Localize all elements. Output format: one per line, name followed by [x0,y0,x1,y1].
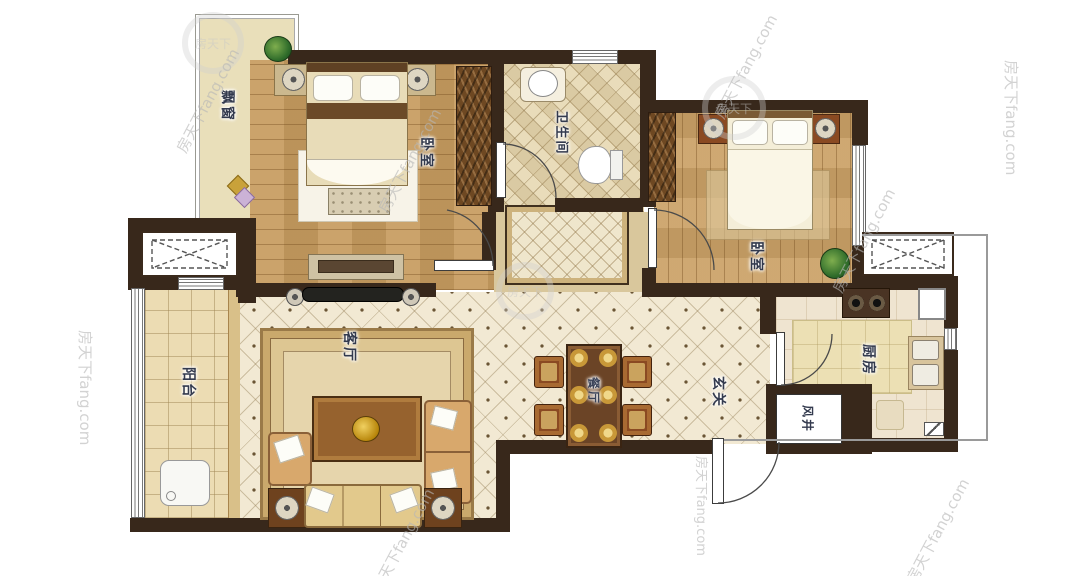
burner-icon [869,295,885,311]
dining-chair [534,356,564,388]
wall-segment [944,284,958,328]
bedroom-right-window [852,145,866,246]
lamp-icon [275,496,299,520]
wall-segment [238,218,256,303]
plate-icon [599,349,617,367]
headboard [307,63,407,72]
toilet-tank [610,150,623,180]
washer-dial-icon [166,491,176,501]
table-bowl-icon [352,416,380,442]
wardrobe [648,112,676,202]
wash-basin-icon [528,70,558,97]
watermark-text: 房天下fang.com [1001,60,1022,175]
lamp-icon [815,118,836,139]
toilet-icon [578,146,612,184]
boundary-line [986,236,988,441]
elevator-shaft-right [862,232,954,276]
plate-icon [599,424,617,442]
bedroom-right-label: 卧室 [747,241,767,273]
blanket [728,149,812,229]
tv-speaker-icon [402,288,420,306]
bed-bench [328,188,390,215]
plate-icon [570,424,588,442]
living-room-label: 客厅 [340,331,360,363]
balcony-railing [228,290,240,518]
lamp-icon [406,68,429,91]
washing-machine-icon [160,460,210,506]
watermark-text: 房天下fang.com [693,456,712,556]
tv-cabinet-inlay [318,260,394,273]
plant-icon [264,36,292,62]
lamp-icon [431,496,455,520]
watermark-logo: 房天下 [182,12,244,74]
sheet-fold [307,159,407,185]
elevator-shaft-left [141,231,238,277]
pillow [313,75,353,101]
plate-icon [570,349,588,367]
bay-window-label: 飘窗 [218,90,238,122]
bedroom-left-label: 卧室 [417,137,437,169]
watermark-text: 房天下fang.com [75,330,96,445]
kitchen-door [776,332,785,386]
stove-icon [842,288,890,318]
kitchen-window [944,328,957,350]
balcony-label: 阳台 [179,367,199,399]
sink-basin-icon [912,364,939,386]
kitchen-mat-large [792,320,912,394]
dining-chair [622,356,652,388]
entry-label: 玄关 [709,376,729,408]
pillow [360,75,400,101]
bedroom-left-door [434,260,494,271]
wall-segment [760,283,776,334]
floor-plan: 飘窗 卧室 卫生间 卧室 客厅 餐厅 玄关 厨房 风井 阳台 房天下 房天下 房… [0,0,1074,576]
wall-segment [555,198,643,212]
dining-chair [622,404,652,436]
sink-basin-icon [912,340,939,360]
dining-room-label: 餐厅 [586,377,603,405]
kitchen-mat-small [876,400,904,430]
lamp-icon [282,68,305,91]
tv-screen [302,287,404,302]
wall-segment [128,218,250,231]
wall-segment [852,100,868,145]
floor-drain-icon [924,422,944,436]
bathroom-door [496,142,506,198]
bedroom-right-door [648,208,657,268]
wall-segment [944,350,958,452]
kitchen-label: 厨房 [859,344,879,376]
entry-door [712,438,724,504]
balcony-window [131,288,145,518]
burner-icon [848,295,864,311]
boundary-line [724,439,988,441]
plant-icon [820,248,850,279]
wall-segment [502,50,574,64]
pillow [772,120,808,145]
wardrobe [456,66,492,206]
blanket-band [307,103,407,119]
bathroom-window [572,50,618,64]
watermark-logo: 房天下 [496,262,554,320]
boundary-line [862,234,988,236]
fridge [918,288,946,320]
bathroom-label: 卫生间 [554,110,573,155]
air-shaft-label: 风井 [800,405,817,433]
watermark-logo: 房天下 [702,76,766,140]
bed [306,62,408,186]
dining-chair [534,404,564,436]
watermark-text: 房天下fang.com [901,475,974,576]
